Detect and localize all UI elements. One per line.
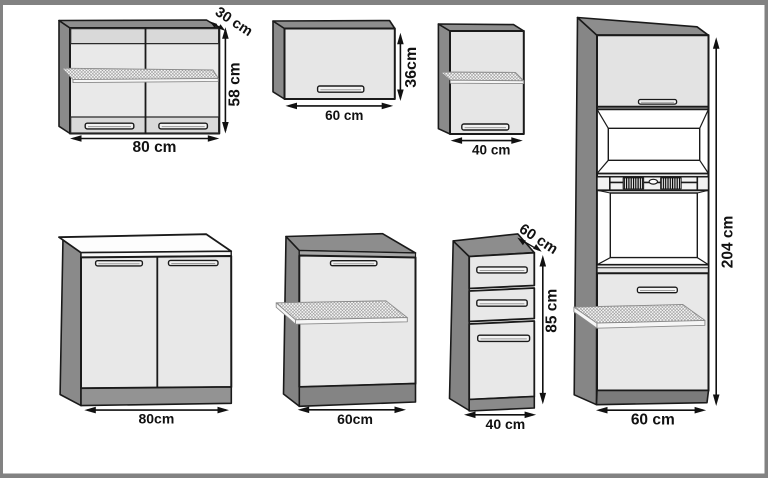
svg-text:60cm: 60cm <box>337 411 373 427</box>
svg-text:85 cm: 85 cm <box>544 289 561 333</box>
svg-text:80cm: 80cm <box>138 411 174 427</box>
svg-text:204 cm: 204 cm <box>720 216 737 269</box>
svg-text:80 cm: 80 cm <box>133 139 177 156</box>
svg-text:40 cm: 40 cm <box>472 142 510 157</box>
svg-text:60 cm: 60 cm <box>325 108 363 123</box>
svg-text:58 cm: 58 cm <box>227 63 244 107</box>
svg-text:36cm: 36cm <box>403 47 420 88</box>
svg-text:40 cm: 40 cm <box>486 416 526 432</box>
svg-text:60 cm: 60 cm <box>631 411 675 428</box>
